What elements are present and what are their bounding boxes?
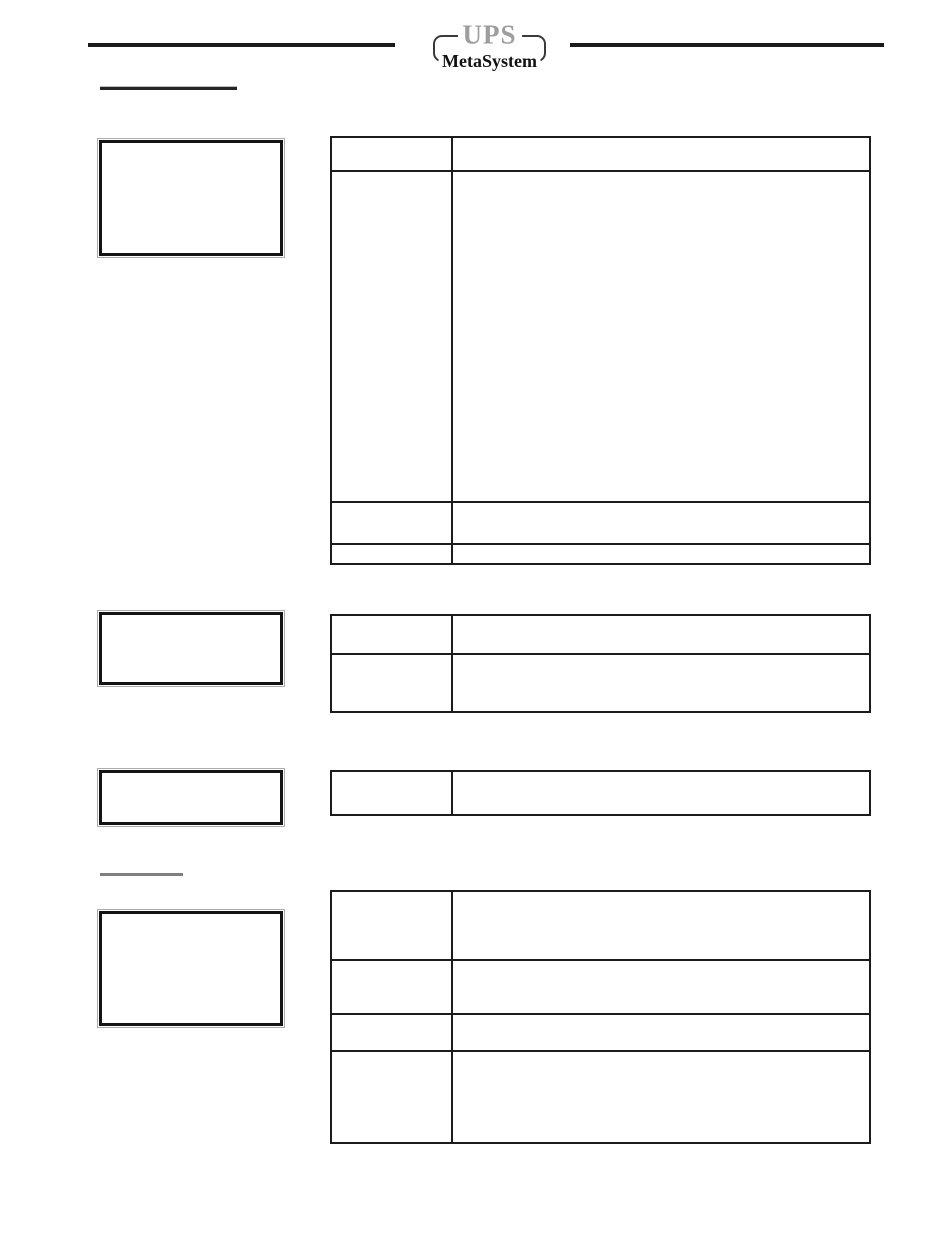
table-4-r1-description [452, 891, 870, 960]
table-row [331, 891, 870, 960]
callout-box-4 [99, 911, 283, 1026]
table-4-r3-label [331, 1014, 452, 1051]
table-4-r3-description [452, 1014, 870, 1051]
table-1-r2-description [452, 171, 870, 502]
table-4-r1-label [331, 891, 452, 960]
table-4-r4-description [452, 1051, 870, 1143]
table-row [331, 960, 870, 1014]
table-4-r4-label [331, 1051, 452, 1143]
table-row [331, 1014, 870, 1051]
section1-heading-underline [100, 87, 237, 90]
table-1 [330, 136, 871, 565]
table-4-r2-label [331, 960, 452, 1014]
table-1-r4-description [452, 544, 870, 564]
header-rule-left [88, 43, 395, 47]
callout-box-2 [99, 612, 283, 685]
table-row [331, 171, 870, 502]
table-row [331, 771, 870, 815]
logo-brand-text: UPS [457, 21, 521, 48]
table-1-r1-label [331, 137, 452, 171]
table-1-r3-description [452, 502, 870, 544]
table-row [331, 1051, 870, 1143]
table-4-r2-description [452, 960, 870, 1014]
table-row [331, 502, 870, 544]
callout-box-3 [99, 770, 283, 825]
table-2-r2-label [331, 654, 452, 712]
table-2-r1-label [331, 615, 452, 654]
table-2 [330, 614, 871, 713]
table-1-r3-label [331, 502, 452, 544]
table-3-r1-label [331, 771, 452, 815]
section2-heading-underline [100, 873, 183, 876]
table-1-r4-label [331, 544, 452, 564]
table-row [331, 615, 870, 654]
document-page: UPS MetaSystem [0, 0, 950, 1244]
table-2-r1-description [452, 615, 870, 654]
table-2-r2-description [452, 654, 870, 712]
table-3 [330, 770, 871, 816]
table-1-r2-label [331, 171, 452, 502]
ups-metasystem-logo: UPS MetaSystem [433, 35, 546, 62]
logo-subbrand-text: MetaSystem [438, 52, 541, 70]
callout-box-1 [99, 140, 283, 256]
table-3-r1-description [452, 771, 870, 815]
table-row [331, 544, 870, 564]
table-1-r1-description [452, 137, 870, 171]
table-4 [330, 890, 871, 1144]
table-row [331, 137, 870, 171]
header-rule-right [570, 43, 884, 47]
table-row [331, 654, 870, 712]
